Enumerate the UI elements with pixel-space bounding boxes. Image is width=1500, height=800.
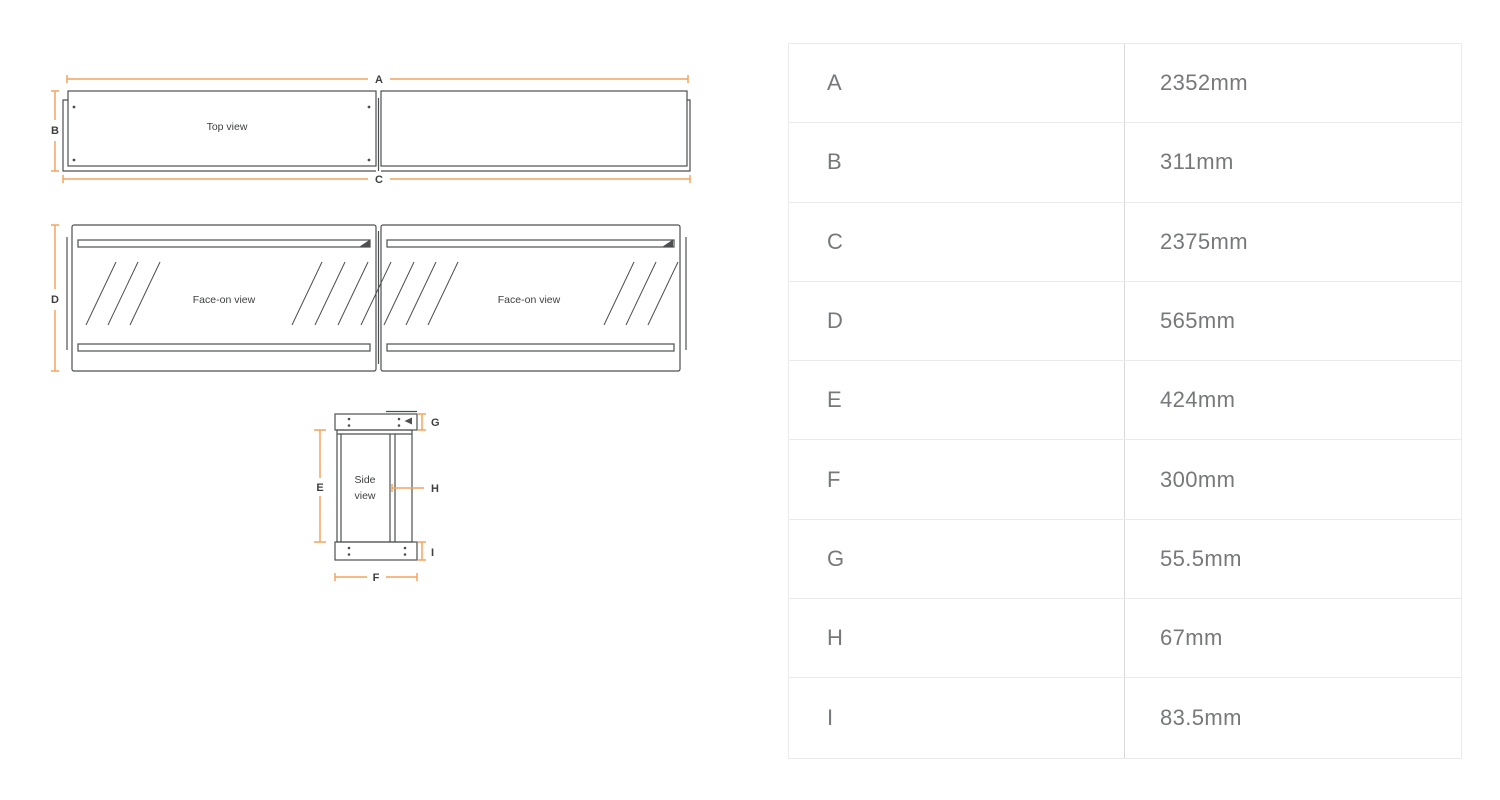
dim-label-c: C	[375, 174, 383, 186]
dimension-diagram: A Top view B	[0, 0, 760, 620]
side-view-drawing: Side view E G H	[314, 412, 440, 585]
top-view-panels	[63, 91, 690, 171]
table-row: B 311mm	[789, 123, 1461, 202]
table-row: A 2352mm	[789, 44, 1461, 123]
face-on-panels	[67, 225, 686, 371]
cap-arrow-marker-icon	[405, 418, 413, 425]
dim-line-i	[418, 542, 426, 560]
right-panel-corner-bracket-icon	[662, 240, 673, 248]
dim-label-f: F	[373, 572, 380, 584]
dim-label-b: B	[51, 125, 59, 137]
dim-value-cell: 83.5mm	[1125, 678, 1461, 757]
dimension-spec-table: A 2352mm B 311mm C 2375mm D 565mm E 424m…	[788, 43, 1462, 759]
top-view-drawing: A Top view B	[51, 74, 690, 186]
dim-label-e: E	[316, 482, 323, 494]
dim-label-a: A	[375, 74, 383, 86]
dim-value-cell: 2375mm	[1125, 203, 1461, 281]
dim-line-h	[392, 484, 424, 492]
dim-value-cell: 424mm	[1125, 361, 1461, 439]
table-row: C 2375mm	[789, 203, 1461, 282]
face-on-view-drawing: D	[51, 225, 686, 371]
left-panel-corner-bracket-icon	[359, 240, 370, 248]
dim-label-d: D	[51, 294, 59, 306]
dim-value-cell: 55.5mm	[1125, 520, 1461, 598]
dim-letter-cell: B	[789, 123, 1125, 201]
dim-label-i: I	[431, 547, 434, 559]
dim-value-cell: 2352mm	[1125, 44, 1461, 122]
dim-letter-cell: H	[789, 599, 1125, 677]
dim-letter-cell: C	[789, 203, 1125, 281]
face-on-view-label-right: Face-on view	[498, 294, 561, 306]
dim-letter-cell: D	[789, 282, 1125, 360]
dim-value-cell: 565mm	[1125, 282, 1461, 360]
side-view-body	[335, 412, 417, 561]
dim-value-cell: 300mm	[1125, 440, 1461, 518]
table-row: D 565mm	[789, 282, 1461, 361]
dim-label-h: H	[431, 483, 439, 495]
dim-letter-cell: G	[789, 520, 1125, 598]
table-row: F 300mm	[789, 440, 1461, 519]
page: A Top view B	[0, 0, 1500, 800]
dim-letter-cell: F	[789, 440, 1125, 518]
top-view-screws	[73, 106, 371, 162]
top-view-label: Top view	[207, 121, 248, 133]
table-row: E 424mm	[789, 361, 1461, 440]
side-view-label-line1: Side	[354, 474, 375, 486]
dim-value-cell: 311mm	[1125, 123, 1461, 201]
side-view-screws	[348, 418, 407, 556]
dim-letter-cell: I	[789, 678, 1125, 757]
side-view-label-line2: view	[354, 490, 375, 502]
dim-line-g	[418, 414, 426, 430]
table-row: G 55.5mm	[789, 520, 1461, 599]
table-row: H 67mm	[789, 599, 1461, 678]
dim-label-g: G	[431, 417, 440, 429]
dim-value-cell: 67mm	[1125, 599, 1461, 677]
dim-letter-cell: E	[789, 361, 1125, 439]
dim-letter-cell: A	[789, 44, 1125, 122]
face-on-view-label-left: Face-on view	[193, 294, 256, 306]
table-row: I 83.5mm	[789, 678, 1461, 757]
